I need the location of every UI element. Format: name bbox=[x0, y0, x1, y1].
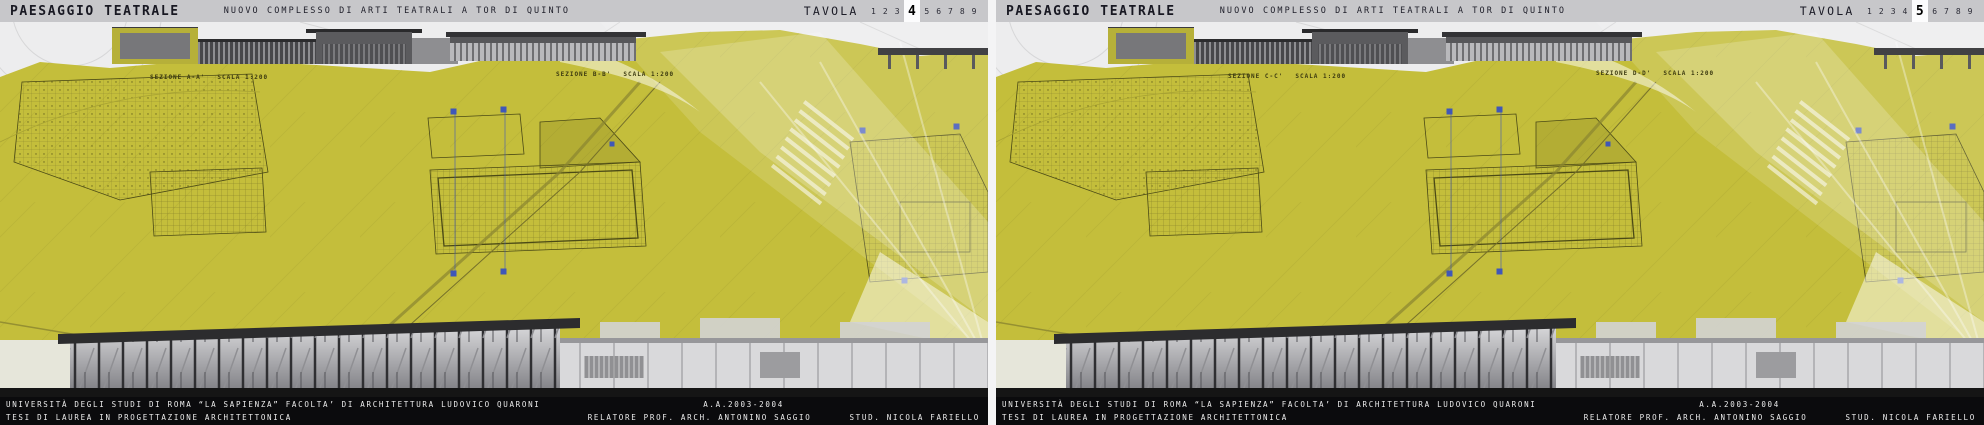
tavola-number: 3 bbox=[895, 0, 900, 22]
tavola-number: 8 bbox=[960, 0, 965, 22]
panel-header: PAESAGGIO TEATRALE NUOVO COMPLESSO DI AR… bbox=[996, 0, 1984, 22]
tavola-number: 6 bbox=[936, 0, 941, 22]
tavola-number: 1 bbox=[1867, 0, 1872, 22]
board-subtitle: NUOVO COMPLESSO DI ARTI TEATRALI A TOR D… bbox=[1220, 6, 1566, 16]
footer-line-1: UNIVERSITÀ DEGLI STUDI DI ROMA “LA SAPIE… bbox=[6, 400, 982, 409]
tavola-number: 7 bbox=[1944, 0, 1949, 22]
student-text: STUD. NICOLA FARIELLO bbox=[849, 413, 982, 422]
university-text: UNIVERSITÀ DEGLI STUDI DI ROMA “LA SAPIE… bbox=[1002, 400, 1537, 409]
panel-tavola-4: PAESAGGIO TEATRALE NUOVO COMPLESSO DI AR… bbox=[0, 0, 988, 425]
site-plan-drawing bbox=[0, 22, 988, 397]
section-caption: SEZIONE B-B' SCALA 1:200 bbox=[556, 71, 674, 78]
advisor-text: RELATORE PROF. ARCH. ANTONINO SAGGIO bbox=[588, 413, 812, 422]
tavola-index: TAVOLA 1 2 3 4 5 6 7 8 9 bbox=[1800, 0, 1976, 22]
section-label: SEZIONE A-A' bbox=[150, 74, 205, 81]
panel-footer: UNIVERSITÀ DEGLI STUDI DI ROMA “LA SAPIE… bbox=[996, 397, 1984, 425]
panel-header: PAESAGGIO TEATRALE NUOVO COMPLESSO DI AR… bbox=[0, 0, 988, 22]
panel-tavola-5: PAESAGGIO TEATRALE NUOVO COMPLESSO DI AR… bbox=[996, 0, 1984, 425]
section-scale: SCALA 1:200 bbox=[217, 74, 268, 81]
university-text: UNIVERSITÀ DEGLI STUDI DI ROMA “LA SAPIE… bbox=[6, 400, 541, 409]
section-label: SEZIONE D-D' bbox=[1596, 70, 1651, 77]
tavola-number-active: 5 bbox=[1912, 0, 1928, 22]
tavola-label: TAVOLA bbox=[804, 4, 859, 18]
thesis-text: TESI DI LAUREA IN PROGETTAZIONE ARCHITET… bbox=[1002, 413, 1288, 422]
tavola-number: 7 bbox=[948, 0, 953, 22]
tavola-number: 8 bbox=[1956, 0, 1961, 22]
tavola-number: 2 bbox=[1879, 0, 1884, 22]
section-caption: SEZIONE C-C' SCALA 1:200 bbox=[1228, 73, 1346, 80]
site-plan-drawing bbox=[996, 22, 1984, 397]
tavola-number: 2 bbox=[883, 0, 888, 22]
footer-line-1: UNIVERSITÀ DEGLI STUDI DI ROMA “LA SAPIE… bbox=[1002, 400, 1978, 409]
tavola-number: 9 bbox=[972, 0, 977, 22]
section-label: SEZIONE C-C' bbox=[1228, 73, 1283, 80]
academic-year: A.A.2003-2004 bbox=[1699, 400, 1780, 409]
presentation-board: PAESAGGIO TEATRALE NUOVO COMPLESSO DI AR… bbox=[0, 0, 1984, 425]
tavola-number: 1 bbox=[871, 0, 876, 22]
section-caption: SEZIONE A-A' SCALA 1:200 bbox=[150, 74, 268, 81]
board-subtitle: NUOVO COMPLESSO DI ARTI TEATRALI A TOR D… bbox=[224, 6, 570, 16]
tavola-number: 9 bbox=[1968, 0, 1973, 22]
footer-line-2: TESI DI LAUREA IN PROGETTAZIONE ARCHITET… bbox=[1002, 413, 1978, 422]
tavola-number-active: 4 bbox=[904, 0, 920, 22]
board-title: PAESAGGIO TEATRALE bbox=[10, 4, 180, 19]
panel-footer: UNIVERSITÀ DEGLI STUDI DI ROMA “LA SAPIE… bbox=[0, 397, 988, 425]
tavola-index: TAVOLA 1 2 3 4 5 6 7 8 9 bbox=[804, 0, 980, 22]
advisor-text: RELATORE PROF. ARCH. ANTONINO SAGGIO bbox=[1584, 413, 1808, 422]
tavola-number: 6 bbox=[1932, 0, 1937, 22]
section-label: SEZIONE B-B' bbox=[556, 71, 611, 78]
section-scale: SCALA 1:200 bbox=[1295, 73, 1346, 80]
footer-line-2: TESI DI LAUREA IN PROGETTAZIONE ARCHITET… bbox=[6, 413, 982, 422]
board-title: PAESAGGIO TEATRALE bbox=[1006, 4, 1176, 19]
section-scale: SCALA 1:200 bbox=[1663, 70, 1714, 77]
student-text: STUD. NICOLA FARIELLO bbox=[1845, 413, 1978, 422]
academic-year: A.A.2003-2004 bbox=[703, 400, 784, 409]
section-caption: SEZIONE D-D' SCALA 1:200 bbox=[1596, 70, 1714, 77]
thesis-text: TESI DI LAUREA IN PROGETTAZIONE ARCHITET… bbox=[6, 413, 292, 422]
tavola-number: 5 bbox=[924, 0, 929, 22]
tavola-label: TAVOLA bbox=[1800, 4, 1855, 18]
section-scale: SCALA 1:200 bbox=[623, 71, 674, 78]
tavola-number: 3 bbox=[1891, 0, 1896, 22]
tavola-number: 4 bbox=[1903, 0, 1908, 22]
panel-divider bbox=[988, 0, 996, 425]
